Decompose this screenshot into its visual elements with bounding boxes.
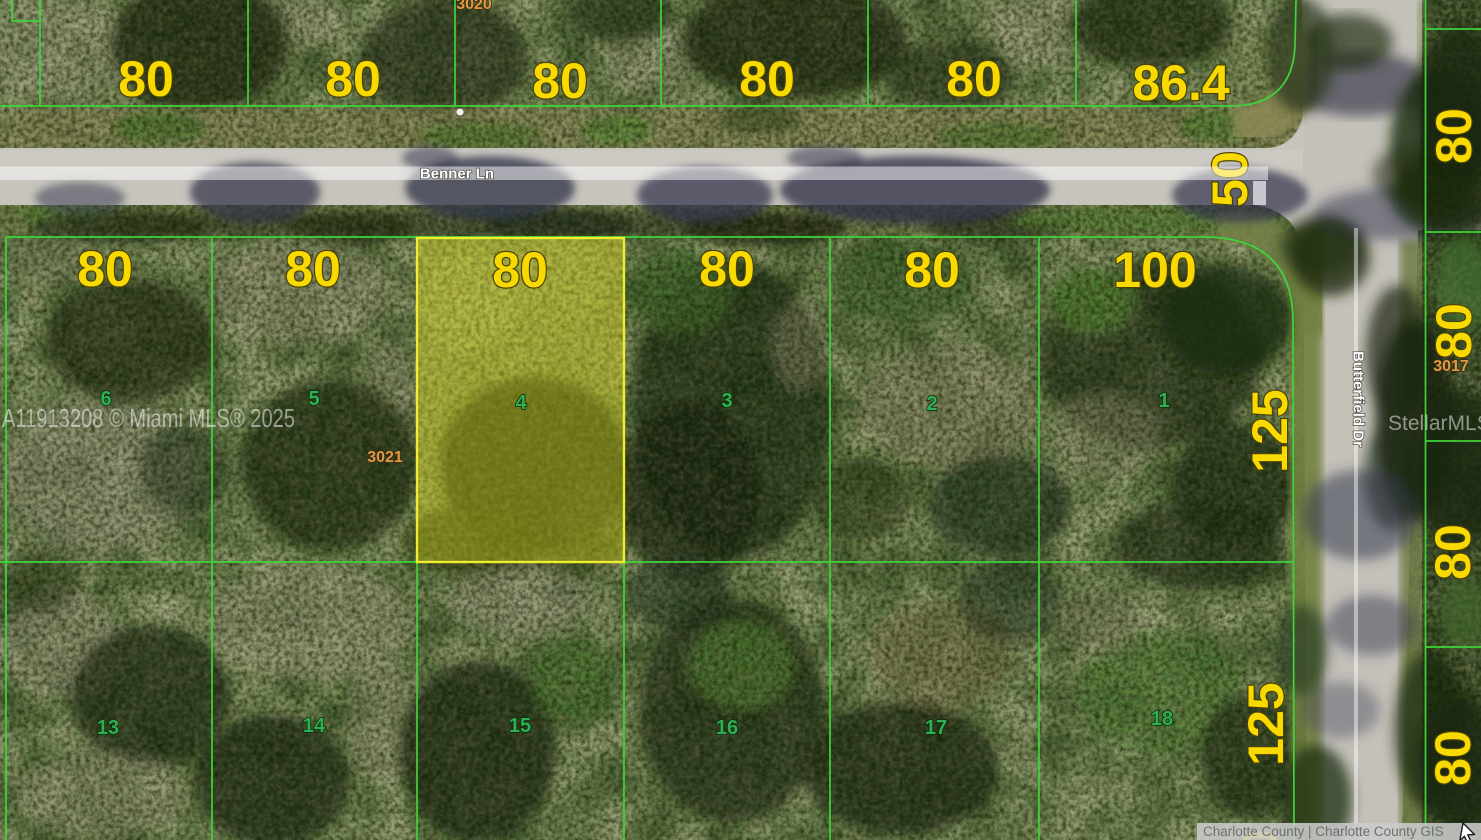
svg-text:A11913208 © Miami MLS® 2025: A11913208 © Miami MLS® 2025 [2,403,295,433]
svg-text:14: 14 [303,715,326,737]
svg-text:80: 80 [1426,108,1481,164]
svg-text:4: 4 [515,392,527,414]
svg-text:80: 80 [699,241,755,297]
svg-text:3021: 3021 [367,449,403,466]
svg-text:125: 125 [1238,682,1294,765]
svg-text:3017: 3017 [1433,358,1469,375]
svg-text:80: 80 [739,51,795,107]
svg-text:13: 13 [97,717,119,739]
svg-text:86.4: 86.4 [1132,55,1230,111]
svg-text:StellarMLS: StellarMLS [1388,412,1481,435]
svg-text:18: 18 [1151,708,1173,730]
svg-text:80: 80 [1425,730,1481,786]
svg-text:80: 80 [532,53,588,109]
svg-text:80: 80 [77,241,133,297]
svg-text:5: 5 [308,388,319,410]
svg-text:1: 1 [1158,390,1169,412]
svg-text:3020: 3020 [456,0,492,13]
svg-text:80: 80 [492,242,548,298]
svg-text:80: 80 [946,51,1002,107]
svg-text:3: 3 [721,390,732,412]
svg-text:Butterfield Dr: Butterfield Dr [1350,351,1367,447]
svg-text:15: 15 [509,715,531,737]
svg-text:16: 16 [716,717,738,739]
svg-text:100: 100 [1113,242,1196,298]
svg-text:2: 2 [926,393,937,415]
svg-text:80: 80 [904,242,960,298]
svg-text:80: 80 [285,241,341,297]
svg-text:Charlotte County | Charlotte C: Charlotte County | Charlotte County GIS [1203,824,1444,839]
svg-text:80: 80 [1425,524,1481,580]
svg-text:80: 80 [1426,303,1481,359]
svg-text:125: 125 [1242,389,1298,472]
svg-text:17: 17 [925,717,947,739]
svg-text:80: 80 [118,51,174,107]
svg-text:Benner Ln: Benner Ln [420,166,494,183]
svg-text:80: 80 [325,51,381,107]
